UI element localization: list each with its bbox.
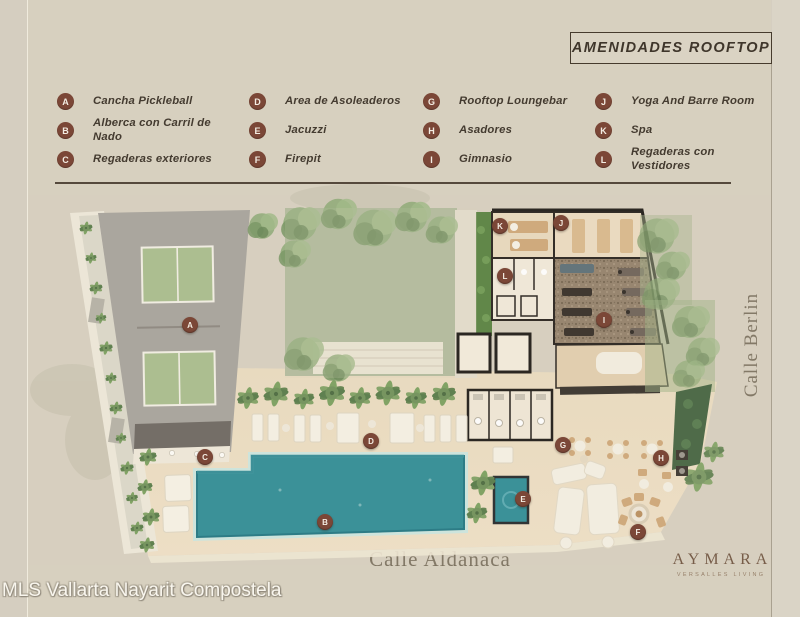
rooftop-amenities-plan: AMENIDADES ROOFTOP A Cancha Pickleball B… bbox=[0, 0, 800, 617]
plan-marker-h: H bbox=[653, 450, 669, 466]
plan-marker-c: C bbox=[197, 449, 213, 465]
plan-marker-e: E bbox=[515, 491, 531, 507]
site-plan-illustration bbox=[0, 0, 800, 617]
plan-marker-f: F bbox=[630, 524, 646, 540]
plan-marker-j: J bbox=[553, 215, 569, 231]
render-haze bbox=[28, 195, 771, 565]
plan-marker-d: D bbox=[363, 433, 379, 449]
plan-marker-g: G bbox=[555, 437, 571, 453]
plan-marker-k: K bbox=[492, 218, 508, 234]
plan-marker-i: I bbox=[596, 312, 612, 328]
plan-marker-b: B bbox=[317, 514, 333, 530]
plan-marker-l: L bbox=[497, 268, 513, 284]
plan-marker-a: A bbox=[182, 317, 198, 333]
